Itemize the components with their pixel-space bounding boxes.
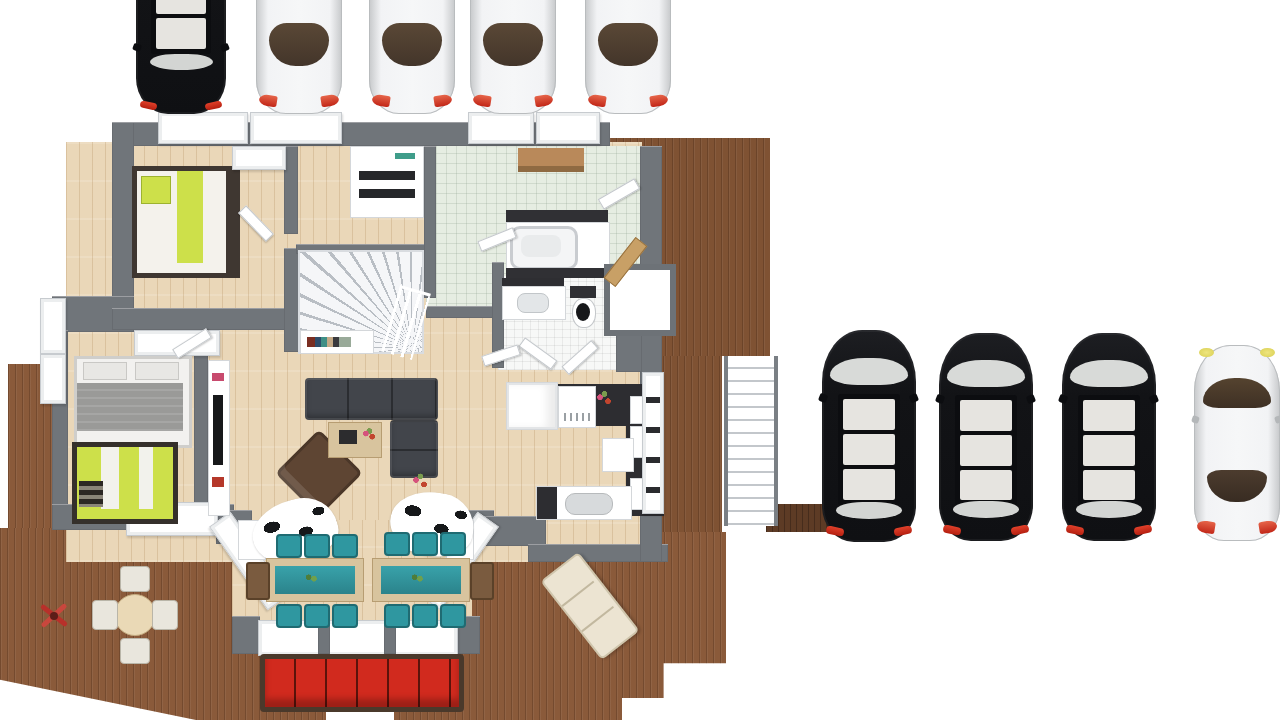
dining-chair xyxy=(384,604,410,628)
dining-chair xyxy=(412,604,438,628)
gray-blanket xyxy=(77,383,183,431)
washbasin xyxy=(517,293,549,313)
dining-chair xyxy=(440,604,466,628)
dining-chair xyxy=(440,532,466,556)
dining-chair xyxy=(304,534,330,558)
stove xyxy=(558,386,596,428)
bath-backsplash xyxy=(502,278,564,286)
window-north-1 xyxy=(158,112,248,144)
wall-corridor-vertical xyxy=(284,146,298,234)
round-table-chair-east xyxy=(152,600,178,630)
bathtub-basin xyxy=(521,235,561,257)
gray-double-bed xyxy=(74,356,192,448)
book-spines xyxy=(307,337,351,347)
window-west-2 xyxy=(40,354,66,404)
lime-bunk-bed xyxy=(72,442,178,524)
dining-chair xyxy=(304,604,330,628)
red-pinwheel-decor xyxy=(36,598,72,634)
sink-counter xyxy=(536,486,632,520)
lime-single-bed xyxy=(132,166,240,278)
laundry-closet xyxy=(350,146,424,218)
lime-pillow xyxy=(141,176,171,204)
under-stair-bookshelf xyxy=(300,330,374,354)
bed-pillow-left xyxy=(83,362,127,380)
dining-chair xyxy=(276,534,302,558)
washer-slot-1 xyxy=(359,171,415,180)
dining-chair xyxy=(332,534,358,558)
black-suv-car xyxy=(1062,333,1156,541)
washbasin-counter xyxy=(502,286,566,320)
wall-master-living xyxy=(194,352,208,518)
black-suv-car xyxy=(939,333,1033,541)
lounge-divider-2 xyxy=(581,606,614,632)
lime-blanket-band xyxy=(177,171,203,263)
coffee-table-flowers xyxy=(361,428,377,442)
window-east-column xyxy=(642,372,664,514)
round-table-chair-south xyxy=(120,638,150,664)
sectional-sofa-vertical xyxy=(390,420,438,478)
end-bench-left xyxy=(246,562,270,600)
dining-chair xyxy=(276,604,302,628)
dining-chair xyxy=(332,604,358,628)
dining-table-right xyxy=(372,558,470,602)
stove-grill xyxy=(564,413,590,421)
wardrobe-bedroom1 xyxy=(232,146,286,170)
window-north-2 xyxy=(250,112,342,144)
red-outdoor-sofa xyxy=(260,654,464,712)
window-west-1 xyxy=(40,298,66,354)
wall-entry-vertical xyxy=(424,146,436,298)
exterior-staircase xyxy=(724,356,778,526)
wall-west-upper xyxy=(112,122,134,308)
tv-screen xyxy=(213,395,223,465)
coffee-table-tray xyxy=(339,430,357,444)
round-table xyxy=(114,594,156,636)
white-sedan-car xyxy=(585,0,671,114)
floor-plan-scene xyxy=(0,0,1280,720)
end-bench-right xyxy=(470,562,494,600)
living-room-flowers xyxy=(410,472,430,492)
coffee-table xyxy=(328,422,382,458)
dishwasher xyxy=(602,438,634,472)
round-table-chair-north xyxy=(120,566,150,592)
washer-slot-2 xyxy=(359,189,415,198)
dining-chair xyxy=(412,532,438,556)
east-strip-deck xyxy=(656,356,722,534)
dining-table-left xyxy=(266,558,364,602)
toilet-seat xyxy=(576,303,590,321)
window-north-3 xyxy=(468,112,534,144)
entry-bench xyxy=(518,148,584,172)
bunk-white-stripe-1 xyxy=(101,447,119,509)
kitchen-sink xyxy=(565,493,613,515)
wall-bay-bottom-left xyxy=(232,616,260,654)
sectional-sofa-horizontal xyxy=(305,378,438,420)
pinwheel-center xyxy=(50,612,58,620)
toilet-tank xyxy=(570,286,596,298)
lounge-divider-1 xyxy=(562,581,595,607)
white-sedan-car xyxy=(1194,345,1280,541)
bathtub xyxy=(510,226,578,270)
tv-sideboard xyxy=(208,360,230,516)
utility-counter-top xyxy=(506,210,608,222)
shelf-items xyxy=(395,153,415,159)
dining-chair xyxy=(384,532,410,556)
fridge xyxy=(506,382,558,430)
white-sedan-car xyxy=(369,0,455,114)
bed-pillow-right xyxy=(135,362,179,380)
table-plant-left xyxy=(303,571,319,585)
kitchen-flowers xyxy=(594,390,614,408)
black-suv-car xyxy=(136,0,226,114)
bunk-ladder xyxy=(79,481,103,507)
decor-red xyxy=(212,477,224,487)
bunk-white-stripe-2 xyxy=(139,447,153,509)
black-suv-car xyxy=(822,330,916,542)
utility-counter-bottom xyxy=(506,268,608,278)
white-sedan-car xyxy=(470,0,556,114)
counter-dark-cap xyxy=(537,487,557,519)
table-plant-right xyxy=(409,571,425,585)
decor-pink xyxy=(212,373,224,381)
window-north-4 xyxy=(536,112,600,144)
white-sedan-car xyxy=(256,0,342,114)
toilet-bowl xyxy=(572,298,596,328)
wall-bedroom-divider xyxy=(112,308,300,330)
round-table-chair-west xyxy=(92,600,118,630)
